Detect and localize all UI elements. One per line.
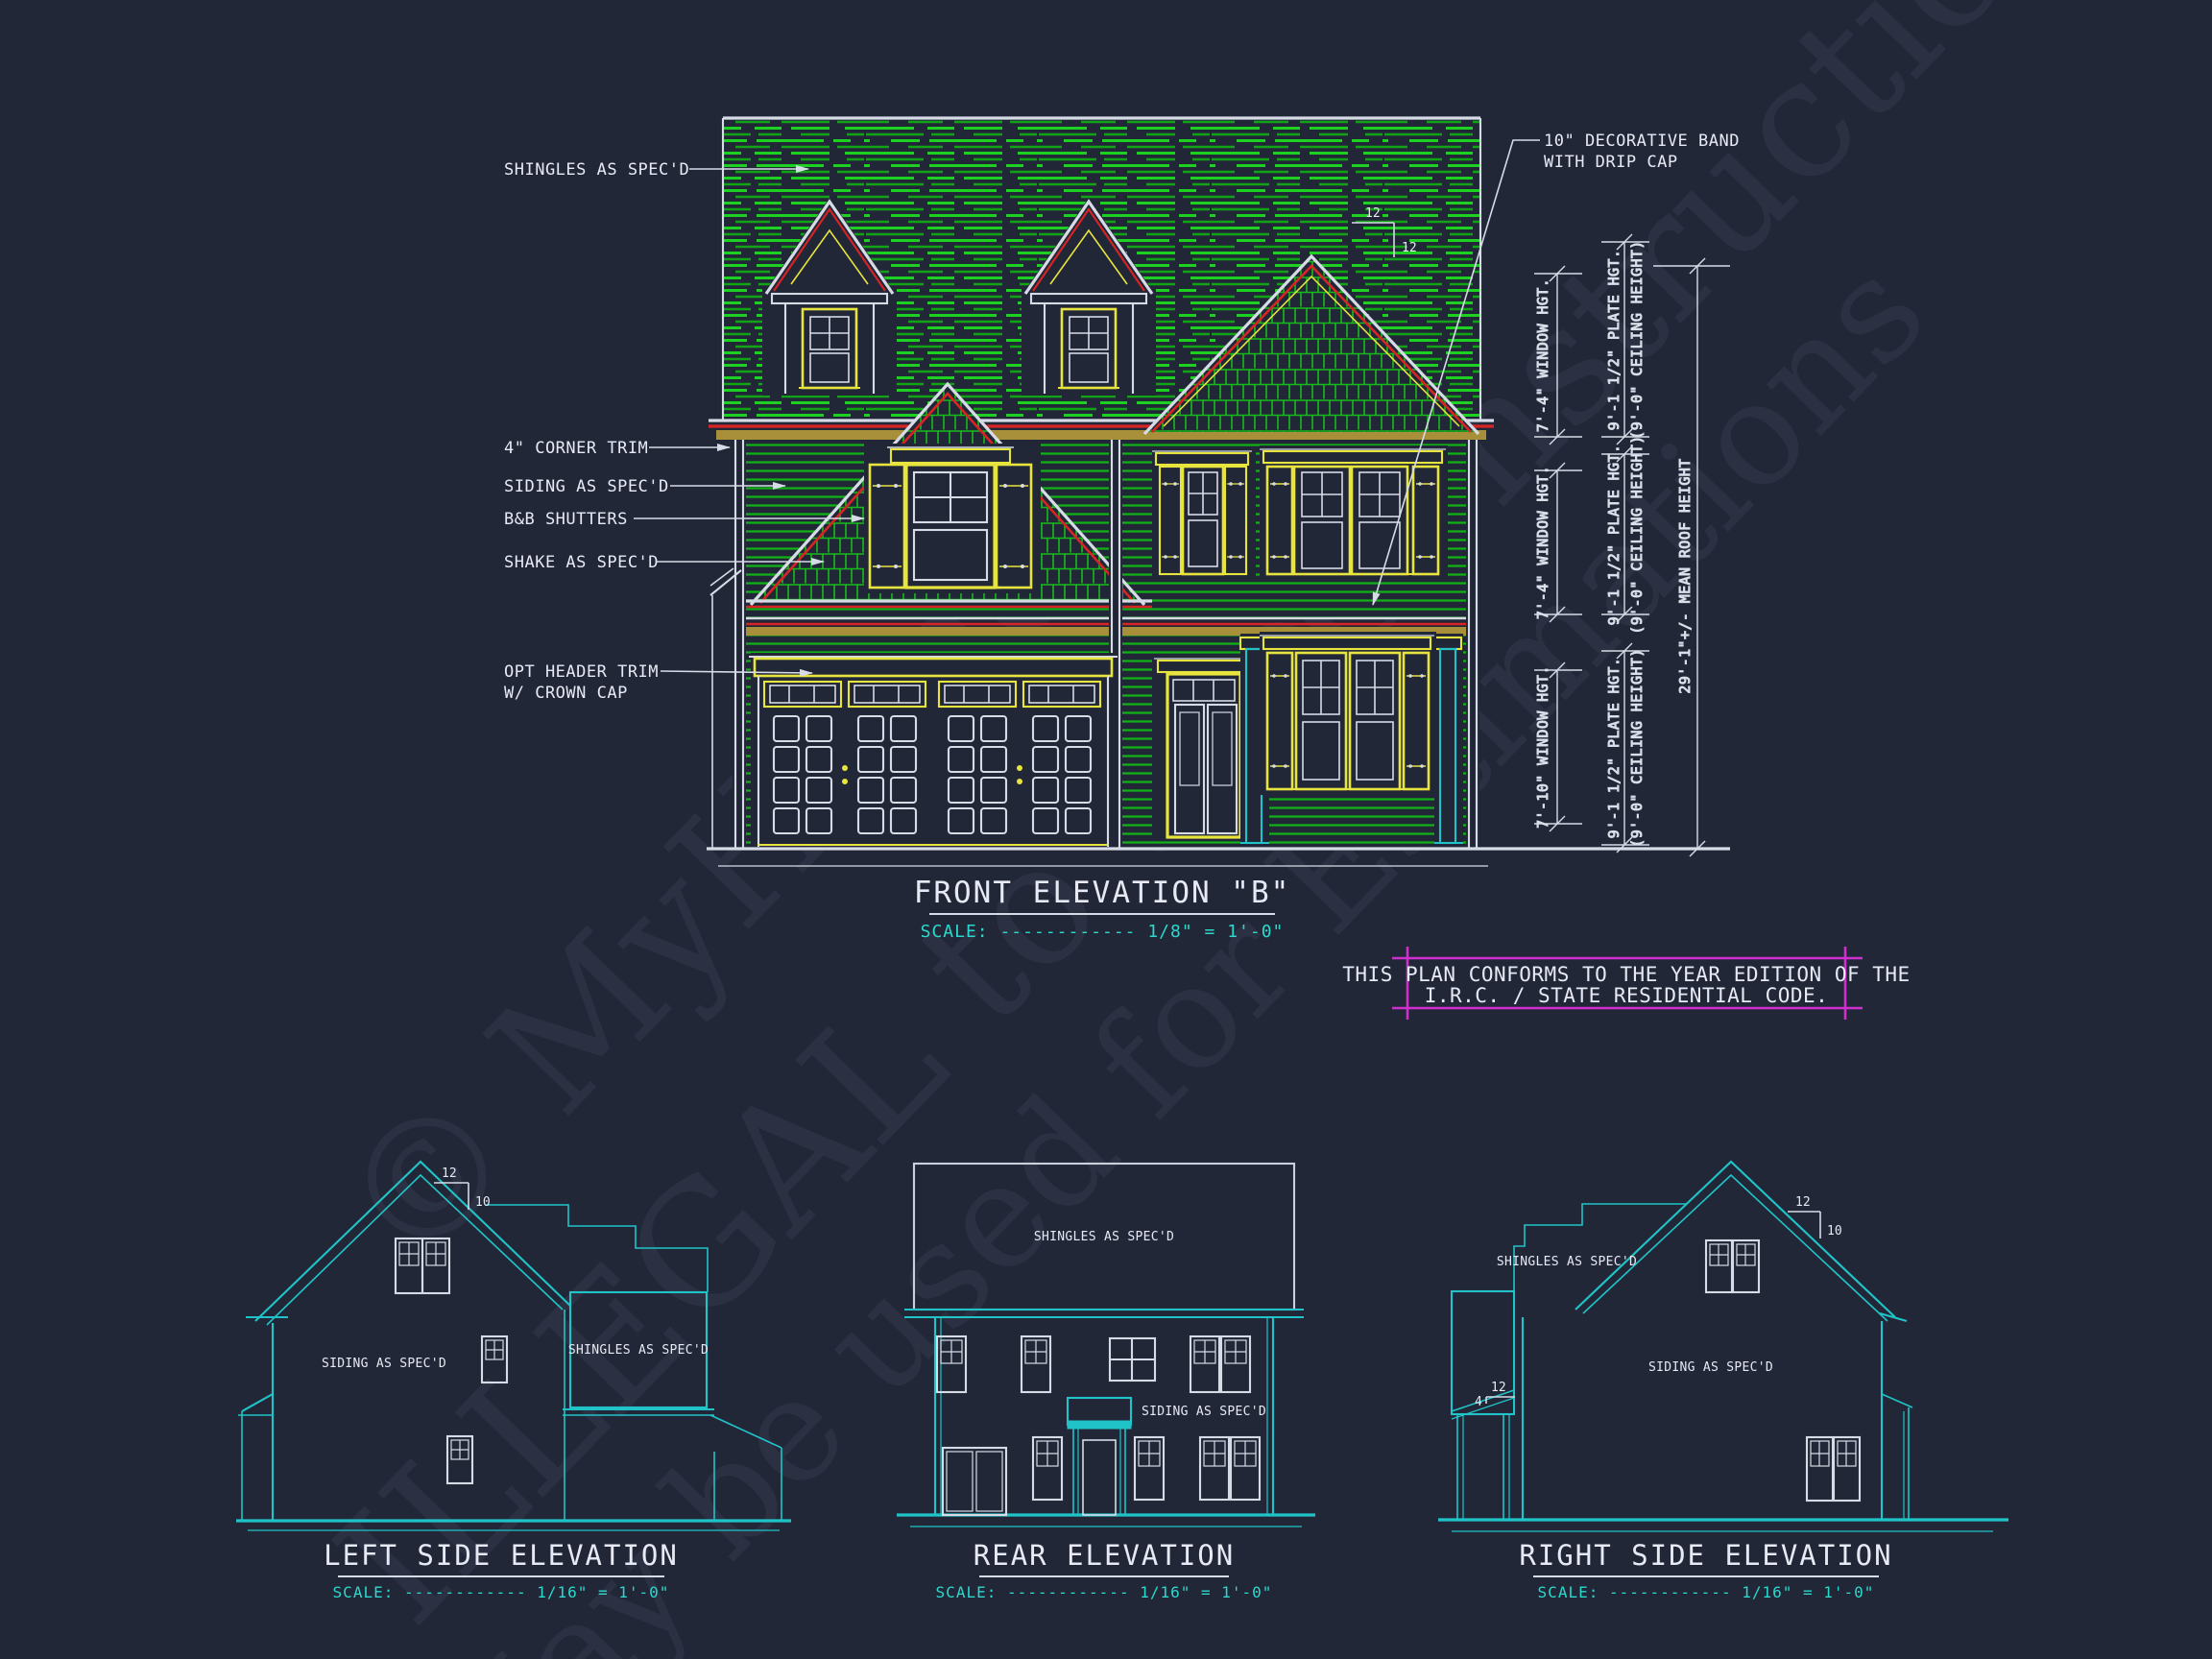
- pitch-rise: 12: [1795, 1195, 1811, 1210]
- left-siding-label: SIDING AS SPEC'D: [322, 1357, 446, 1371]
- callout-shingles: SHINGLES AS SPEC'D: [504, 160, 689, 180]
- second-floor-window-single: [1152, 447, 1256, 578]
- callout-header-trim-line2: W/ CROWN CAP: [504, 684, 628, 703]
- pitch-run: 4: [1475, 1395, 1482, 1409]
- callout-shake: SHAKE AS SPEC'D: [504, 553, 659, 572]
- right-siding-label: SIDING AS SPEC'D: [1648, 1360, 1773, 1375]
- dim-window-height-lower: 7'-10" WINDOW HGT.: [1534, 665, 1551, 829]
- pitch-run: 10: [1827, 1224, 1842, 1238]
- right-shingles-label: SHINGLES AS SPEC'D: [1497, 1255, 1637, 1269]
- right-side-elevation-drawing: 12 10 12 4 SHINGLES AS SPEC'D SIDING AS …: [1438, 1162, 2008, 1601]
- code-note-box: THIS PLAN CONFORMS TO THE YEAR EDITION O…: [1342, 947, 1910, 1020]
- front-title-block: FRONT ELEVATION "B" SCALE: ------------ …: [914, 876, 1291, 942]
- left-shingles-label: SHINGLES AS SPEC'D: [568, 1343, 709, 1358]
- dim-ceiling-height-1: (9'-0" CEILING HEIGHT): [1628, 240, 1646, 439]
- rear-siding-label: SIDING AS SPEC'D: [1142, 1405, 1266, 1419]
- pitch-run: 12: [1402, 241, 1417, 255]
- callout-decorative-band-line1: 10" DECORATIVE BAND: [1544, 132, 1740, 151]
- dim-ceiling-height-2: (9'-0" CEILING HEIGHT): [1628, 435, 1646, 634]
- pitch-run: 10: [475, 1195, 491, 1210]
- dim-plate-height-3: 9'-1 1/2" PLATE HGT.: [1605, 658, 1623, 839]
- front-title: FRONT ELEVATION "B": [914, 876, 1291, 910]
- gable-window: [864, 444, 1041, 593]
- pitch-rise: 12: [1491, 1381, 1506, 1395]
- callout-shutters: B&B SHUTTERS: [504, 510, 628, 529]
- right-title: RIGHT SIDE ELEVATION: [1519, 1539, 1892, 1572]
- code-note-line2: I.R.C. / STATE RESIDENTIAL CODE.: [1425, 984, 1829, 1007]
- pitch-rise: 12: [1365, 206, 1381, 221]
- dim-window-height-middle: 7'-4" WINDOW HGT.: [1534, 466, 1551, 619]
- dim-mean-roof-height: 29'-1"+/- MEAN ROOF HEIGHT: [1676, 458, 1694, 693]
- dim-ceiling-height-3: (9'-0" CEILING HEIGHT): [1628, 648, 1646, 847]
- callout-decorative-band-line2: WITH DRIP CAP: [1544, 153, 1678, 172]
- right-porch-pitch-marker: 12 4: [1475, 1381, 1515, 1409]
- left-title: LEFT SIDE ELEVATION: [324, 1539, 679, 1572]
- pitch-rise: 12: [442, 1166, 457, 1181]
- front-scale: SCALE: ------------ 1/8" = 1'-0": [921, 922, 1285, 942]
- callout-corner-trim: 4" CORNER TRIM: [504, 439, 648, 458]
- garage: [749, 653, 1118, 849]
- rear-scale: SCALE: ------------ 1/16" = 1'-0": [936, 1583, 1273, 1601]
- callout-header-trim-line1: OPT HEADER TRIM: [504, 662, 659, 682]
- blueprint-sheet: © MyHome ILLEGAL to use May be used for …: [0, 0, 2212, 1659]
- rear-title: REAR ELEVATION: [974, 1539, 1235, 1572]
- left-scale: SCALE: ------------ 1/16" = 1'-0": [333, 1583, 670, 1601]
- dim-plate-height-1: 9'-1 1/2" PLATE HGT.: [1605, 250, 1623, 431]
- second-floor-window-pair: [1260, 445, 1448, 578]
- right-pitch-marker: 12 10: [1788, 1195, 1842, 1238]
- porch-column-right: [1434, 634, 1463, 851]
- callout-siding: SIDING AS SPEC'D: [504, 477, 669, 496]
- first-floor-window-pair: [1260, 632, 1436, 795]
- blueprint-canvas: © MyHome ILLEGAL to use May be used for …: [0, 0, 2212, 1659]
- code-note-line1: THIS PLAN CONFORMS TO THE YEAR EDITION O…: [1342, 963, 1910, 986]
- dim-plate-height-2: 9'-1 1/2" PLATE HGT.: [1605, 445, 1623, 626]
- right-scale: SCALE: ------------ 1/16" = 1'-0": [1538, 1583, 1875, 1601]
- dim-window-height-upper: 7'-4" WINDOW HGT.: [1534, 278, 1551, 432]
- rear-shingles-label: SHINGLES AS SPEC'D: [1034, 1230, 1174, 1244]
